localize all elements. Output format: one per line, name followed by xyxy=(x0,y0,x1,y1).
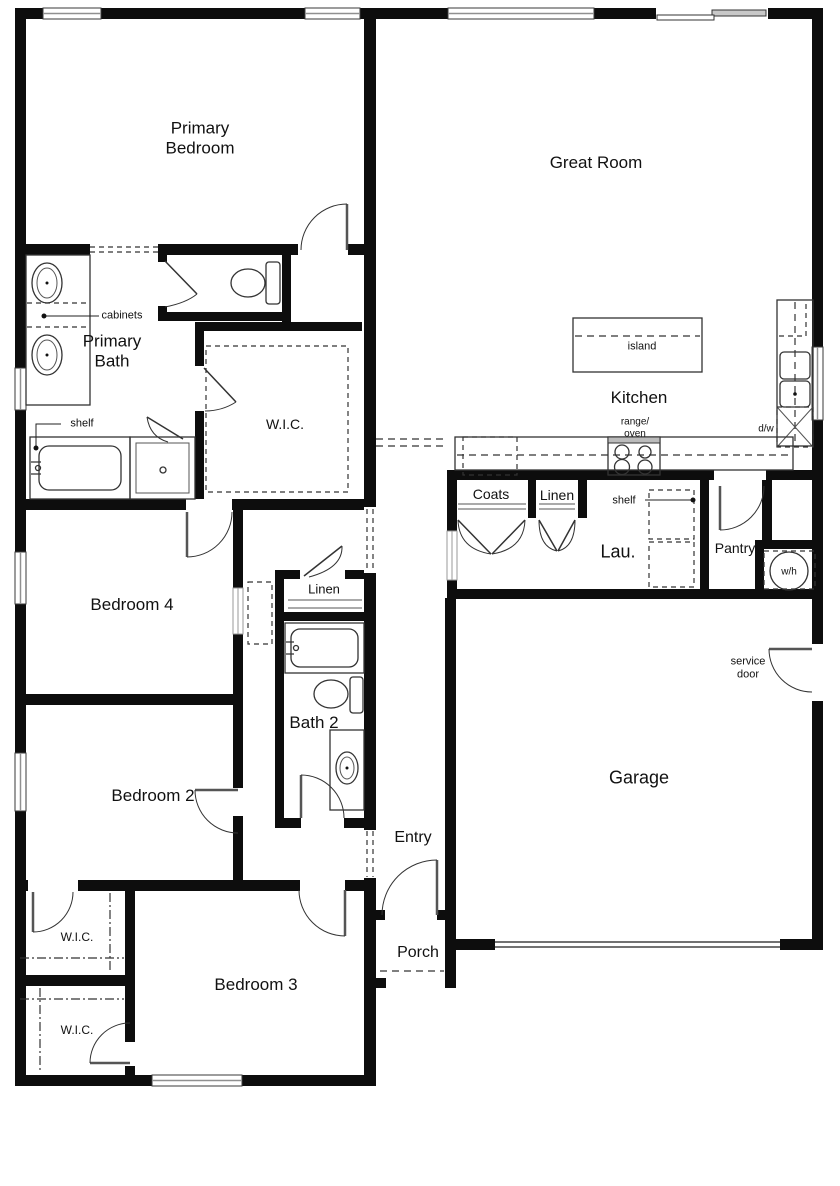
annotation-island: island xyxy=(628,341,657,354)
closet-label-linen-mud: Linen xyxy=(540,487,574,503)
toilet-bath2 xyxy=(314,677,363,713)
room-label-kitchen: Kitchen xyxy=(611,388,668,408)
closet-label-coats: Coats xyxy=(473,486,510,502)
door-pantry xyxy=(720,486,764,530)
window xyxy=(15,552,26,604)
door-bedroom2 xyxy=(195,790,238,833)
closet-label-wic-bedroom2: W.I.C. xyxy=(61,931,94,945)
annotation-service-door: service door xyxy=(731,655,766,680)
vanity-bath2 xyxy=(330,730,364,810)
closet-label-wic-primary: W.I.C. xyxy=(266,416,304,432)
annotation-range-oven: range/ oven xyxy=(621,417,649,440)
range xyxy=(608,437,660,475)
annotation-shelf-laundry: shelf xyxy=(612,495,635,508)
annotation-shelf-bath: shelf xyxy=(70,418,93,431)
shower-primary xyxy=(130,437,195,499)
doors xyxy=(33,204,812,1063)
window xyxy=(152,1075,242,1086)
door-wic-primary xyxy=(204,368,236,411)
room-label-porch: Porch xyxy=(397,944,439,962)
tub-primary xyxy=(30,437,130,499)
vanity-primary xyxy=(26,255,90,405)
room-label-entry: Entry xyxy=(394,829,431,847)
door-garage-service xyxy=(769,649,812,692)
window xyxy=(305,8,360,19)
room-label-laundry: Lau. xyxy=(600,542,635,563)
door-bath2 xyxy=(301,775,344,818)
closet-label-wic-bedroom3: W.I.C. xyxy=(61,1024,94,1038)
door-primary-bedroom xyxy=(301,204,347,250)
room-label-pantry: Pantry xyxy=(715,540,755,556)
windows xyxy=(15,8,823,1086)
room-label-bedroom2: Bedroom 2 xyxy=(111,786,194,806)
annotation-water-heater: w/h xyxy=(781,566,797,578)
room-label-great-room: Great Room xyxy=(550,153,643,173)
floor-plan: Primary Bedroom Great Room Primary Bath … xyxy=(0,0,840,1186)
washer xyxy=(649,490,694,539)
tub-bath2 xyxy=(285,623,364,673)
doors-linen-closet xyxy=(539,520,575,551)
door-bedroom3 xyxy=(299,890,345,936)
toilet-primary xyxy=(231,262,280,304)
doors-coats-closet xyxy=(458,520,525,554)
room-label-primary-bath: Primary Bath xyxy=(83,331,142,370)
door-entry-front xyxy=(382,860,437,915)
room-label-bath2: Bath 2 xyxy=(289,713,338,733)
room-label-bedroom4: Bedroom 4 xyxy=(90,595,173,615)
door-bedroom4 xyxy=(187,512,232,557)
dryer xyxy=(649,542,694,587)
room-label-garage: Garage xyxy=(609,768,669,789)
wall-openings xyxy=(28,8,823,1066)
window xyxy=(15,368,26,410)
room-label-bedroom3: Bedroom 3 xyxy=(214,975,297,995)
door-wic-bedroom3 xyxy=(90,1023,130,1063)
window xyxy=(43,8,101,19)
window xyxy=(15,753,26,811)
plan-graphics xyxy=(0,0,840,1186)
window xyxy=(812,347,823,420)
closet-label-linen-hall: Linen xyxy=(308,583,340,598)
door-water-closet xyxy=(165,261,197,307)
room-label-primary-bedroom: Primary Bedroom xyxy=(166,118,235,157)
annotation-cabinets: cabinets xyxy=(102,310,143,323)
door-shower xyxy=(147,417,183,442)
door-wic-bedroom2 xyxy=(33,892,73,932)
annotation-dishwasher: d/w xyxy=(758,423,774,435)
attic-access xyxy=(248,582,272,644)
window xyxy=(448,8,594,19)
refrigerator xyxy=(463,437,517,475)
